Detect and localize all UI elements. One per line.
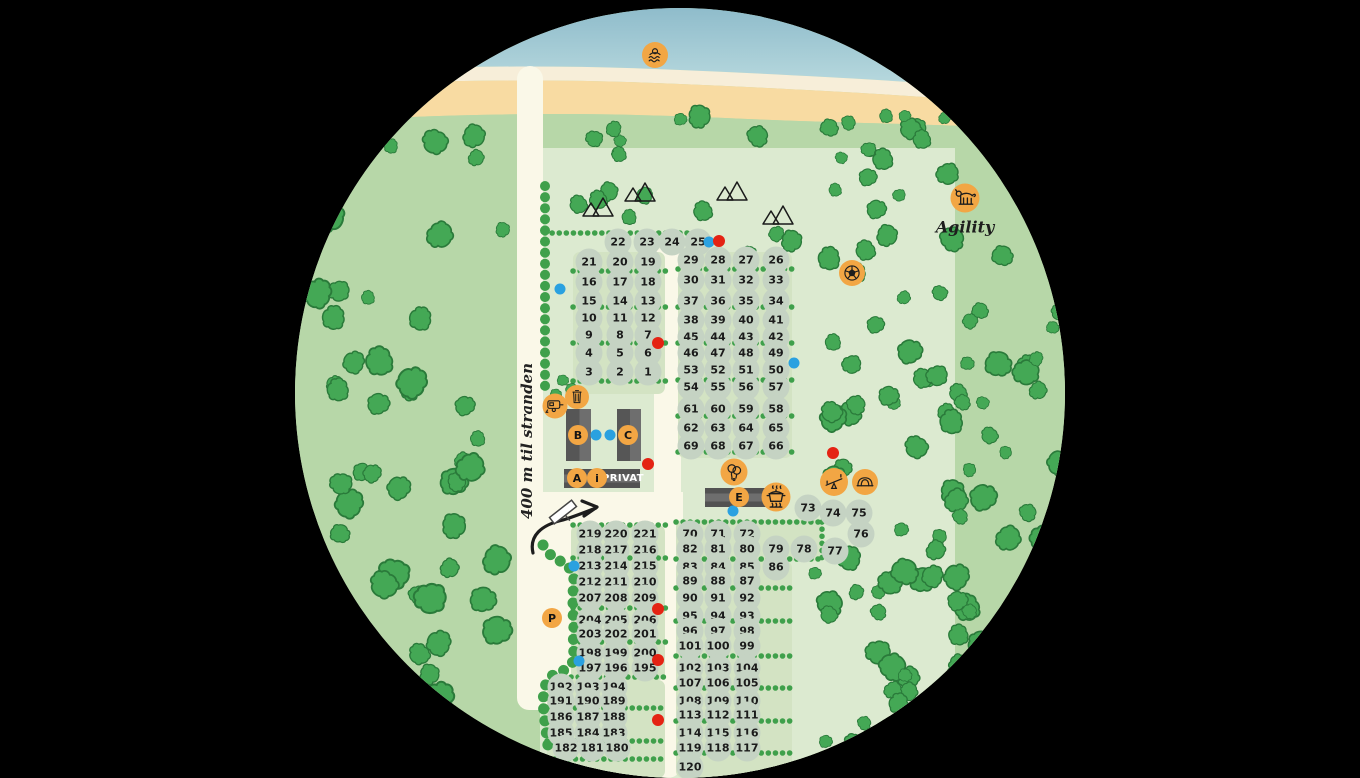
dog-agility-icon-glyph: [954, 187, 977, 210]
pitch-181: 181: [579, 735, 606, 762]
blue-marker-dot: [591, 430, 602, 441]
building-b-marker: B: [568, 425, 588, 445]
red-marker-dot: [713, 235, 725, 247]
info-marker: i: [587, 468, 607, 488]
cooking-pot-icon: [762, 483, 791, 512]
privat-label: PRIVAT: [602, 469, 640, 488]
pitch-182: 182: [553, 735, 580, 762]
pitch-69: 69: [678, 433, 705, 460]
caravan-service-icon: [543, 394, 568, 419]
swimming-icon-glyph: [645, 45, 665, 65]
trash-icon-glyph: [568, 388, 586, 406]
trash-icon: [565, 385, 589, 409]
building-e-marker: E: [729, 487, 749, 507]
football-icon-glyph: [842, 263, 862, 283]
blue-marker-dot: [728, 506, 739, 517]
red-marker-dot: [827, 447, 839, 459]
swimming-icon: [642, 42, 668, 68]
cooking-pot-icon-glyph: [765, 486, 788, 509]
pitch-66: 66: [763, 433, 790, 460]
red-marker-dot: [642, 458, 654, 470]
pitch-86: 86: [763, 554, 790, 581]
red-marker-dot: [652, 654, 664, 666]
balloons-icon: [721, 459, 748, 486]
football-icon: [839, 260, 865, 286]
pitch-118: 118: [705, 735, 732, 762]
road-to-beach-label: 400 m til stranden: [518, 363, 536, 519]
balloons-icon-glyph: [724, 462, 745, 483]
blue-marker-dot: [555, 284, 566, 295]
dog-agility-icon: [951, 184, 980, 213]
pitch-117: 117: [734, 735, 761, 762]
agility-label: Agility: [936, 218, 995, 237]
seesaw-icon: [820, 468, 848, 496]
pitch-120: 120: [677, 754, 704, 778]
pitch-1: 1: [635, 359, 662, 386]
pitch-3: 3: [576, 359, 603, 386]
seesaw-icon-glyph: [823, 471, 845, 493]
campsite-map: PRIVAT 400 m til stranden Agility 222324…: [295, 8, 1065, 778]
pitch-68: 68: [705, 433, 732, 460]
climbing-dome-icon-glyph: [855, 472, 875, 492]
map-overlay: PRIVAT 400 m til stranden Agility 222324…: [295, 8, 1065, 778]
building-c-marker: C: [618, 425, 638, 445]
parking-marker: P: [542, 608, 562, 628]
pitch-77: 77: [822, 538, 849, 565]
pitch-180: 180: [604, 735, 631, 762]
red-marker-dot: [652, 337, 664, 349]
pitch-74: 74: [820, 500, 847, 527]
caravan-service-icon-glyph: [546, 397, 565, 416]
blue-marker-dot: [569, 561, 580, 572]
pitch-76: 76: [848, 521, 875, 548]
red-marker-dot: [652, 603, 664, 615]
pitch-2: 2: [607, 359, 634, 386]
pitch-78: 78: [791, 536, 818, 563]
pitch-67: 67: [733, 433, 760, 460]
building-a-marker: A: [567, 468, 587, 488]
climbing-dome-icon: [852, 469, 878, 495]
blue-marker-dot: [789, 358, 800, 369]
red-marker-dot: [652, 714, 664, 726]
blue-marker-dot: [605, 430, 616, 441]
pitch-73: 73: [795, 495, 822, 522]
blue-marker-dot: [574, 656, 585, 667]
